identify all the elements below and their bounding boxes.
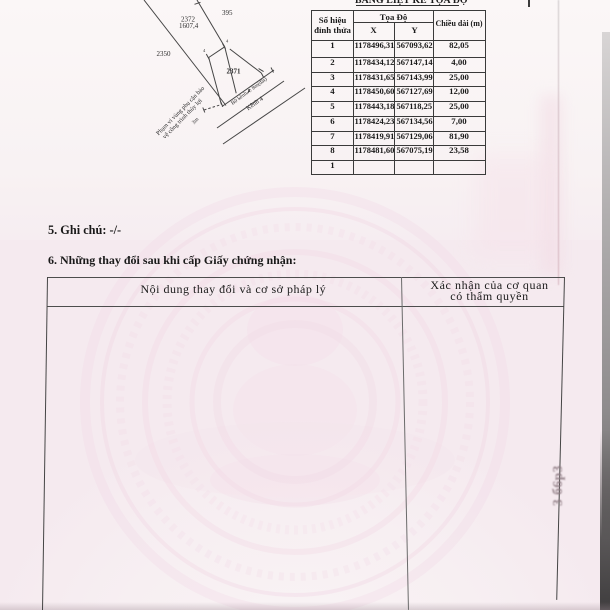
svg-text:3m: 3m [191,116,201,126]
svg-text:Phạm vi vùng phụ cận bảo: Phạm vi vùng phụ cận bảo vệ công trình t… [155,84,212,142]
svg-text:2371: 2371 [227,68,242,76]
svg-text:4: 4 [226,39,229,44]
svg-text:2350: 2350 [157,50,172,58]
svg-text:395: 395 [222,9,233,17]
svg-text:4: 4 [203,48,206,53]
svg-text:Kênh 4: Kênh 4 [245,95,265,112]
svg-text:1607,4: 1607,4 [179,22,199,30]
